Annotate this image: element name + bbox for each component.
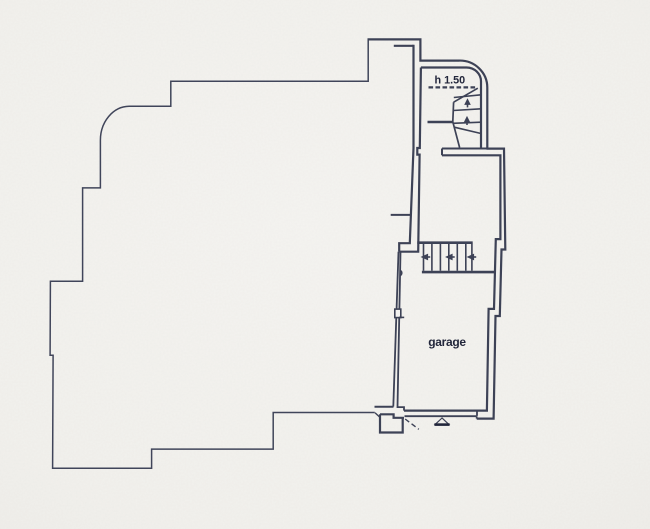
svg-text:garage: garage	[428, 335, 466, 349]
svg-text:h 1.50: h 1.50	[435, 74, 466, 86]
